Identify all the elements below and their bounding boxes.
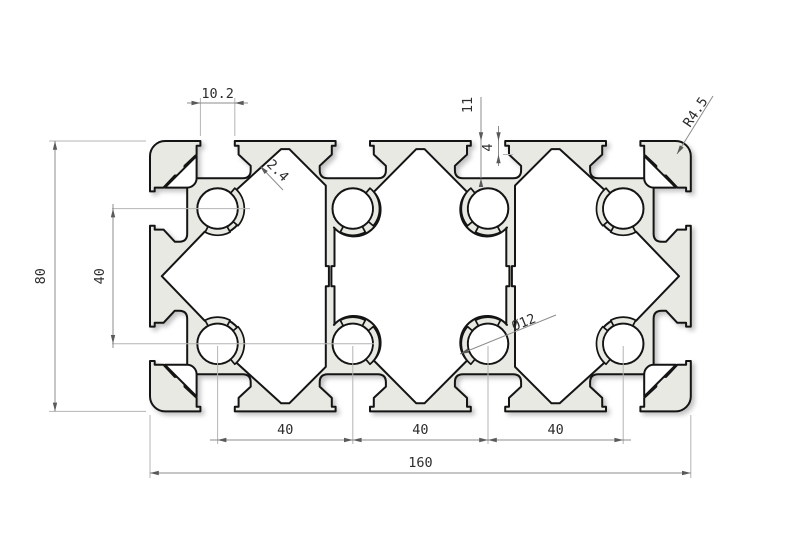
arrowhead — [496, 132, 500, 141]
pitch-label-2: 40 — [412, 422, 428, 438]
arrowhead — [218, 438, 227, 442]
pitch-label-3: 40 — [547, 422, 563, 438]
arrowhead — [353, 438, 362, 442]
dimension-bottom-pitches: 40 40 40 — [210, 422, 631, 442]
profile-height-label: 80 — [33, 268, 49, 284]
arrowhead — [53, 141, 57, 150]
slot-opening-label: 10.2 — [201, 86, 234, 102]
dimension-side-hole-pitch: 40 — [92, 204, 115, 348]
arrowhead — [682, 471, 691, 475]
arrowhead — [488, 438, 497, 442]
dimension-corner-radius: R4.5 — [677, 94, 713, 154]
profile-section — [150, 141, 691, 411]
arrowhead — [150, 471, 159, 475]
arrowhead — [192, 101, 201, 105]
arrowhead — [53, 403, 57, 412]
drawing-canvas: 10.2 11 4 2.4 R4.5 Ø12 80 40 — [0, 0, 804, 557]
arrowhead — [479, 438, 488, 442]
dimension-slot-lip: 4 — [480, 126, 501, 166]
corner-radius-label: R4.5 — [680, 94, 711, 130]
technical-drawing: 10.2 11 4 2.4 R4.5 Ø12 80 40 — [0, 0, 804, 557]
profile-width-label: 160 — [408, 455, 432, 471]
side-hole-pitch-label: 40 — [92, 268, 108, 284]
pitch-label-1: 40 — [277, 422, 293, 438]
arrowhead — [235, 101, 244, 105]
arrowhead — [111, 335, 115, 344]
arrowhead — [479, 132, 483, 141]
arrowhead — [614, 438, 623, 442]
dimension-profile-height: 80 — [33, 141, 57, 411]
dimension-profile-width: 160 — [150, 455, 691, 475]
slot-depth-label: 11 — [460, 97, 476, 113]
slot-lip-label: 4 — [480, 143, 496, 151]
dimension-slot-opening: 10.2 — [187, 86, 248, 105]
arrowhead — [344, 438, 353, 442]
arrowhead — [111, 209, 115, 218]
arrowhead — [496, 155, 500, 164]
